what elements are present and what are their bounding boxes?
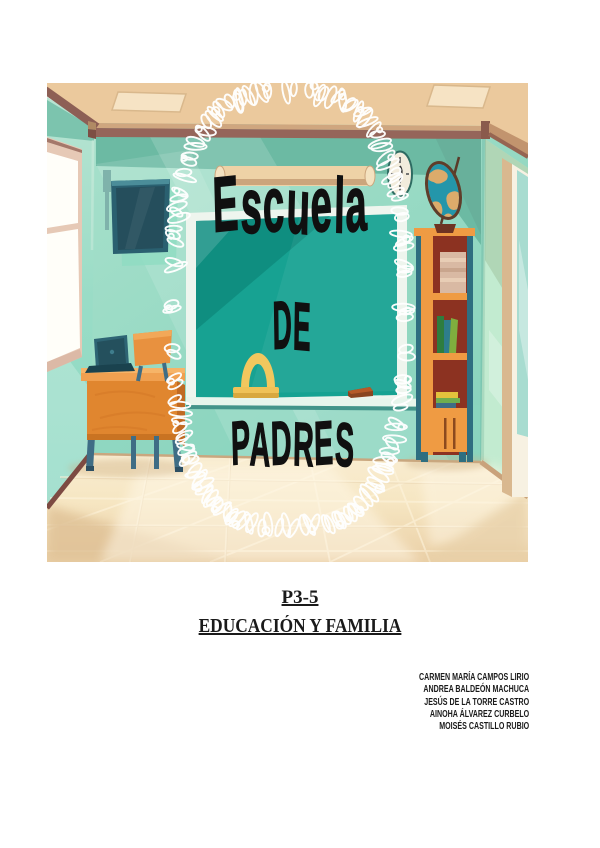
svg-text:Escuela: Escuela <box>212 159 369 252</box>
svg-text:DE: DE <box>272 287 312 365</box>
